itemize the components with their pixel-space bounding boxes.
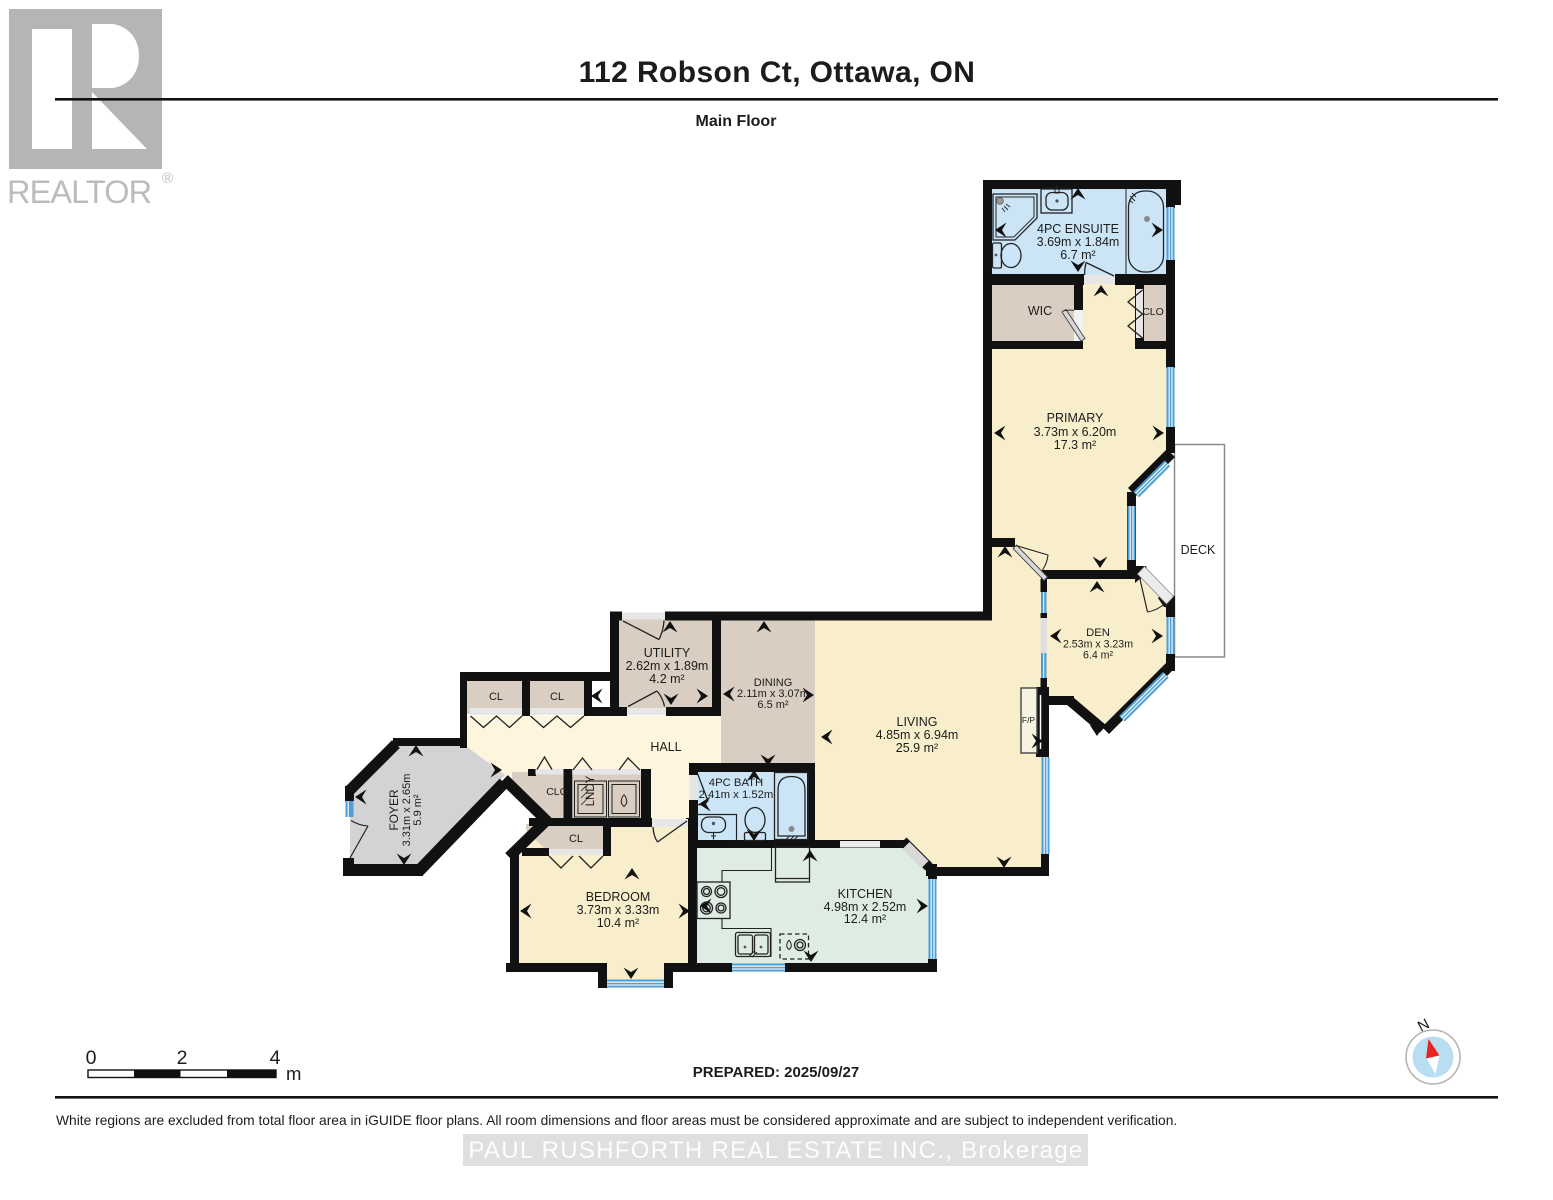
svg-text:White regions are excluded fro: White regions are excluded from total fl… <box>56 1113 1177 1128</box>
svg-text:LIVING: LIVING <box>897 715 938 729</box>
svg-text:FOYER: FOYER <box>387 789 401 831</box>
svg-text:3.73m x 3.33m: 3.73m x 3.33m <box>577 903 660 917</box>
svg-text:LNDY: LNDY <box>585 775 597 806</box>
svg-text:KITCHEN: KITCHEN <box>838 887 893 901</box>
svg-text:DECK: DECK <box>1181 543 1216 557</box>
svg-text:PAUL RUSHFORTH REAL ESTATE INC: PAUL RUSHFORTH REAL ESTATE INC., Brokera… <box>468 1137 1083 1164</box>
svg-text:CL: CL <box>569 833 583 845</box>
svg-text:0: 0 <box>86 1047 97 1069</box>
svg-text:CL: CL <box>489 691 503 703</box>
svg-text:5.9 m²: 5.9 m² <box>412 794 424 826</box>
svg-text:WIC: WIC <box>1028 304 1052 318</box>
svg-text:4PC BATH: 4PC BATH <box>709 777 763 789</box>
svg-text:2.62m x 1.89m: 2.62m x 1.89m <box>626 659 709 673</box>
svg-text:112 Robson Ct, Ottawa, ON: 112 Robson Ct, Ottawa, ON <box>579 56 976 89</box>
svg-text:4: 4 <box>270 1047 281 1069</box>
svg-text:12.4 m²: 12.4 m² <box>844 912 886 926</box>
svg-text:DEN: DEN <box>1086 627 1110 639</box>
svg-text:6.7 m²: 6.7 m² <box>1060 248 1095 262</box>
svg-text:PRIMARY: PRIMARY <box>1047 411 1104 425</box>
svg-text:HALL: HALL <box>650 740 681 754</box>
svg-text:4.85m x 6.94m: 4.85m x 6.94m <box>876 728 959 742</box>
svg-text:F/P: F/P <box>1022 715 1036 725</box>
svg-text:4.2 m²: 4.2 m² <box>649 672 684 686</box>
svg-text:10.4 m²: 10.4 m² <box>597 916 639 930</box>
svg-text:25.9 m²: 25.9 m² <box>896 741 938 755</box>
svg-text:BEDROOM: BEDROOM <box>586 890 651 904</box>
svg-text:3.69m x 1.84m: 3.69m x 1.84m <box>1037 235 1120 249</box>
svg-text:3.73m x 6.20m: 3.73m x 6.20m <box>1034 425 1117 439</box>
svg-text:CLO: CLO <box>546 786 568 798</box>
svg-text:Main Floor: Main Floor <box>696 113 777 130</box>
svg-text:4PC ENSUITE: 4PC ENSUITE <box>1037 222 1119 236</box>
svg-text:PREPARED: 2025/09/27: PREPARED: 2025/09/27 <box>693 1064 859 1081</box>
svg-text:2: 2 <box>177 1047 188 1069</box>
svg-text:UTILITY: UTILITY <box>644 646 691 660</box>
svg-text:6.5 m²: 6.5 m² <box>757 699 789 711</box>
svg-text:m: m <box>286 1063 301 1084</box>
svg-text:17.3 m²: 17.3 m² <box>1054 438 1096 452</box>
svg-text:®: ® <box>162 170 173 187</box>
svg-text:CLO: CLO <box>1142 306 1164 318</box>
svg-text:REALTOR: REALTOR <box>7 174 151 210</box>
svg-text:2.41m x 1.52m: 2.41m x 1.52m <box>699 789 774 801</box>
svg-text:CL: CL <box>550 691 564 703</box>
svg-text:6.4 m²: 6.4 m² <box>1083 650 1113 662</box>
